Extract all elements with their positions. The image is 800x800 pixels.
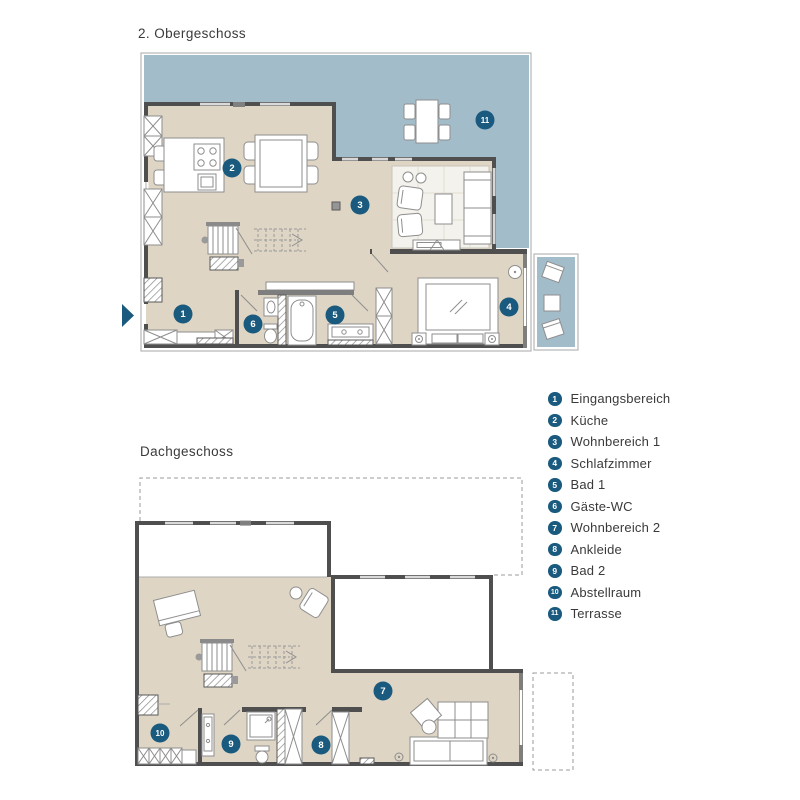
duct-shaft — [144, 278, 162, 302]
floor-title-obergeschoss: 2. Obergeschoss — [138, 26, 246, 41]
legend-label: Bad 1 — [571, 477, 606, 492]
legend-marker: 6 — [548, 500, 562, 514]
legend-item-10: 10Abstellraum — [548, 586, 670, 600]
room-marker-number: 8 — [318, 740, 323, 751]
room-marker-number: 1 — [180, 309, 186, 320]
legend-marker: 4 — [548, 457, 562, 471]
legend-item-9: 9Bad 2 — [548, 564, 670, 578]
entry-arrow-icon — [122, 304, 134, 327]
floor-title-dachgeschoss: Dachgeschoss — [140, 444, 233, 459]
room-marker-number: 3 — [357, 200, 362, 211]
legend-item-3: 3Wohnbereich 1 — [548, 435, 670, 449]
legend-item-2: 2Küche — [548, 414, 670, 428]
vanity-icon — [328, 324, 373, 345]
legend-marker: 7 — [548, 521, 562, 535]
column-icon — [332, 202, 340, 210]
legend-item-7: 7Wohnbereich 2 — [548, 521, 670, 535]
legend-marker: 9 — [548, 564, 562, 578]
legend-label: Terrasse — [571, 606, 622, 621]
legend-marker: 5 — [548, 478, 562, 492]
floor-plan-obergeschoss: 12345611 — [120, 46, 582, 358]
legend-label: Küche — [571, 413, 609, 428]
legend-marker: 3 — [548, 435, 562, 449]
legend-item-1: 1Eingangsbereich — [548, 392, 670, 406]
legend-item-4: 4Schlafzimmer — [548, 457, 670, 471]
legend-marker: 11 — [548, 607, 562, 621]
legend-item-11: 11Terrasse — [548, 607, 670, 621]
room-marker-number: 7 — [380, 686, 385, 697]
roof-band-area — [139, 525, 327, 577]
legend-label: Schlafzimmer — [571, 456, 652, 471]
void-area — [335, 579, 489, 671]
dining-table-icon — [244, 135, 318, 192]
floor-plan-dachgeschoss: 78910 — [120, 462, 582, 778]
room-marker-number: 9 — [228, 739, 233, 750]
legend-label: Bad 2 — [571, 563, 606, 578]
legend-label: Abstellraum — [571, 585, 642, 600]
legend-label: Eingangsbereich — [571, 391, 671, 406]
legend-label: Ankleide — [571, 542, 622, 557]
shaft-wall — [278, 295, 286, 345]
legend-item-8: 8Ankleide — [548, 543, 670, 557]
room-marker-number: 4 — [506, 302, 512, 313]
sofa-set-icon — [392, 166, 491, 250]
room-legend: 1Eingangsbereich2Küche3Wohnbereich 14Sch… — [548, 392, 670, 629]
legend-marker: 1 — [548, 392, 562, 406]
legend-label: Wohnbereich 2 — [571, 520, 661, 535]
legend-label: Gäste-WC — [571, 499, 633, 514]
bathtub-icon — [288, 296, 316, 345]
room-marker-number: 11 — [481, 116, 490, 125]
kitchen-island-icon — [154, 138, 224, 192]
room-marker-number: 10 — [156, 729, 165, 738]
wardrobe-icon — [376, 288, 392, 344]
room-marker-number: 6 — [250, 319, 255, 330]
floorplan-page: { "floors": [ { "id": "obergeschoss", "t… — [0, 0, 800, 800]
legend-marker: 8 — [548, 543, 562, 557]
legend-marker: 10 — [548, 586, 562, 600]
legend-item-6: 6Gäste-WC — [548, 500, 670, 514]
legend-marker: 2 — [548, 414, 562, 428]
room-marker-number: 2 — [229, 163, 234, 174]
room-marker-number: 5 — [332, 310, 338, 321]
legend-item-5: 5Bad 1 — [548, 478, 670, 492]
legend-label: Wohnbereich 1 — [571, 434, 661, 449]
entry-cabinets-icon — [144, 330, 233, 344]
